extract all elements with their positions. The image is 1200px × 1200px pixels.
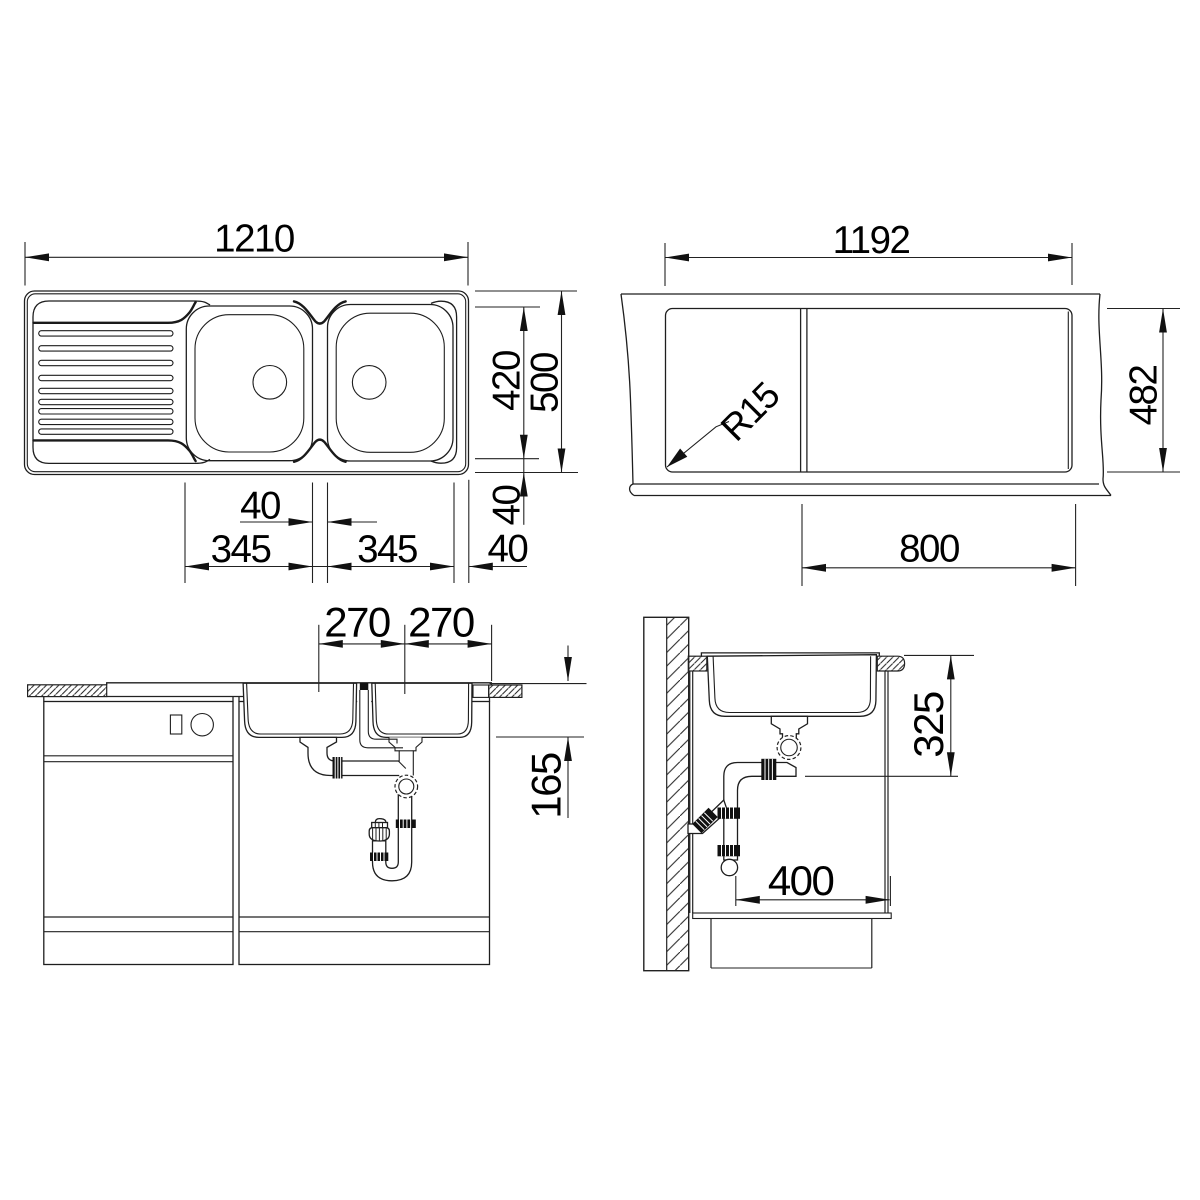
svg-text:482: 482 (1123, 366, 1166, 426)
svg-text:40: 40 (240, 485, 280, 528)
svg-text:345: 345 (211, 528, 271, 571)
svg-text:800: 800 (899, 527, 959, 570)
svg-text:165: 165 (523, 753, 570, 819)
svg-text:345: 345 (357, 528, 417, 571)
svg-text:40: 40 (486, 486, 529, 526)
svg-text:270: 270 (324, 599, 390, 646)
svg-text:325: 325 (905, 692, 952, 758)
svg-text:500: 500 (523, 353, 566, 413)
svg-text:1192: 1192 (833, 219, 910, 262)
svg-text:1210: 1210 (214, 218, 294, 261)
svg-text:270: 270 (408, 599, 474, 646)
svg-text:40: 40 (487, 528, 527, 571)
svg-text:420: 420 (485, 351, 528, 411)
svg-text:400: 400 (768, 857, 834, 904)
